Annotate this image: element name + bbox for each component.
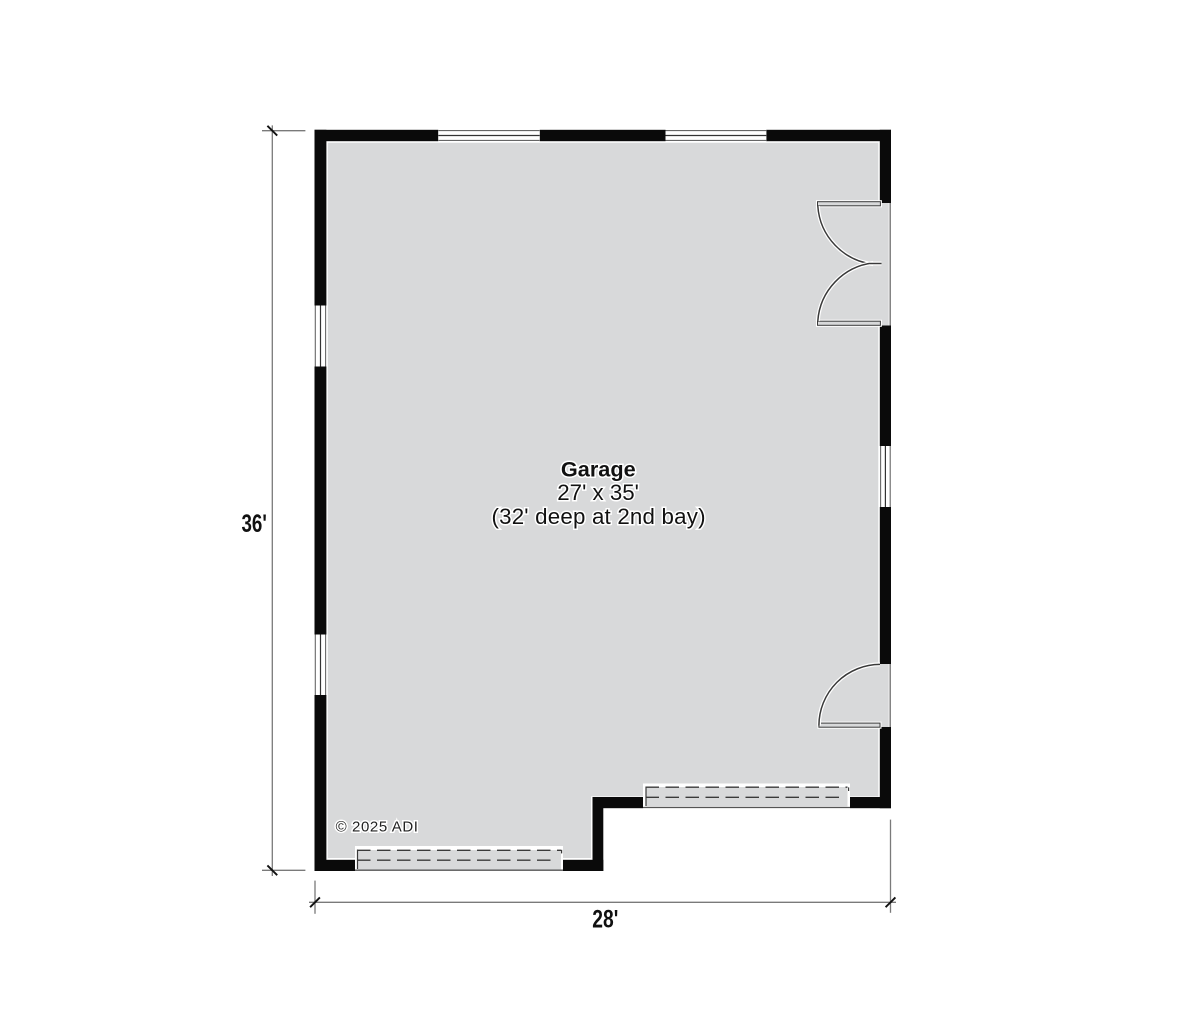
svg-text:27' x 35': 27' x 35' — [557, 480, 639, 505]
svg-text:© 2025 ADI: © 2025 ADI — [336, 818, 419, 835]
svg-text:Garage: Garage — [561, 457, 636, 482]
svg-text:36': 36' — [242, 510, 267, 538]
svg-text:(32' deep at 2nd bay): (32' deep at 2nd bay) — [491, 504, 705, 529]
svg-text:28': 28' — [592, 907, 618, 934]
